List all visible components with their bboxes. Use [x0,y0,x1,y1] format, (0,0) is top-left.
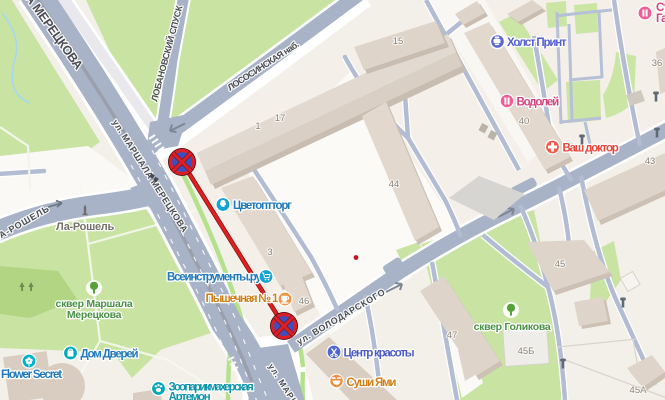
svg-text:Гарнизонная: Гарнизонная [656,13,665,25]
svg-text:45: 45 [555,259,566,270]
svg-text:17: 17 [275,113,286,124]
svg-text:Всеинструменты.ру: Всеинструменты.ру [167,272,262,284]
svg-text:15: 15 [393,36,404,47]
svg-text:Суши Ями: Суши Ями [347,377,397,389]
svg-text:3: 3 [267,247,272,258]
svg-text:Мерецкова: Мерецкова [67,309,122,321]
svg-text:Дом Дверей: Дом Дверей [81,349,139,361]
svg-text:Цветоптторг: Цветоптторг [233,200,292,212]
svg-text:Flower Secret: Flower Secret [1,369,62,381]
svg-text:45Б: 45Б [518,346,535,357]
svg-text:36: 36 [652,58,663,69]
svg-text:Центр красоты: Центр красоты [344,348,415,360]
svg-text:1: 1 [255,121,260,132]
svg-text:Артемон: Артемон [169,392,211,400]
svg-text:Ла-Рошель: Ла-Рошель [56,221,114,233]
svg-text:46: 46 [299,296,310,307]
svg-text:43: 43 [645,156,656,167]
svg-text:47: 47 [447,330,458,341]
svg-text:40: 40 [519,116,530,127]
svg-text:Водолей: Водолей [517,97,560,109]
svg-text:Пышечная № 1: Пышечная № 1 [206,293,280,305]
svg-text:Ваш доктор: Ваш доктор [563,143,619,155]
svg-text:сквер Голикова: сквер Голикова [474,321,551,333]
svg-text:Холст Принт: Холст Принт [507,37,567,49]
svg-text:44: 44 [389,179,400,190]
